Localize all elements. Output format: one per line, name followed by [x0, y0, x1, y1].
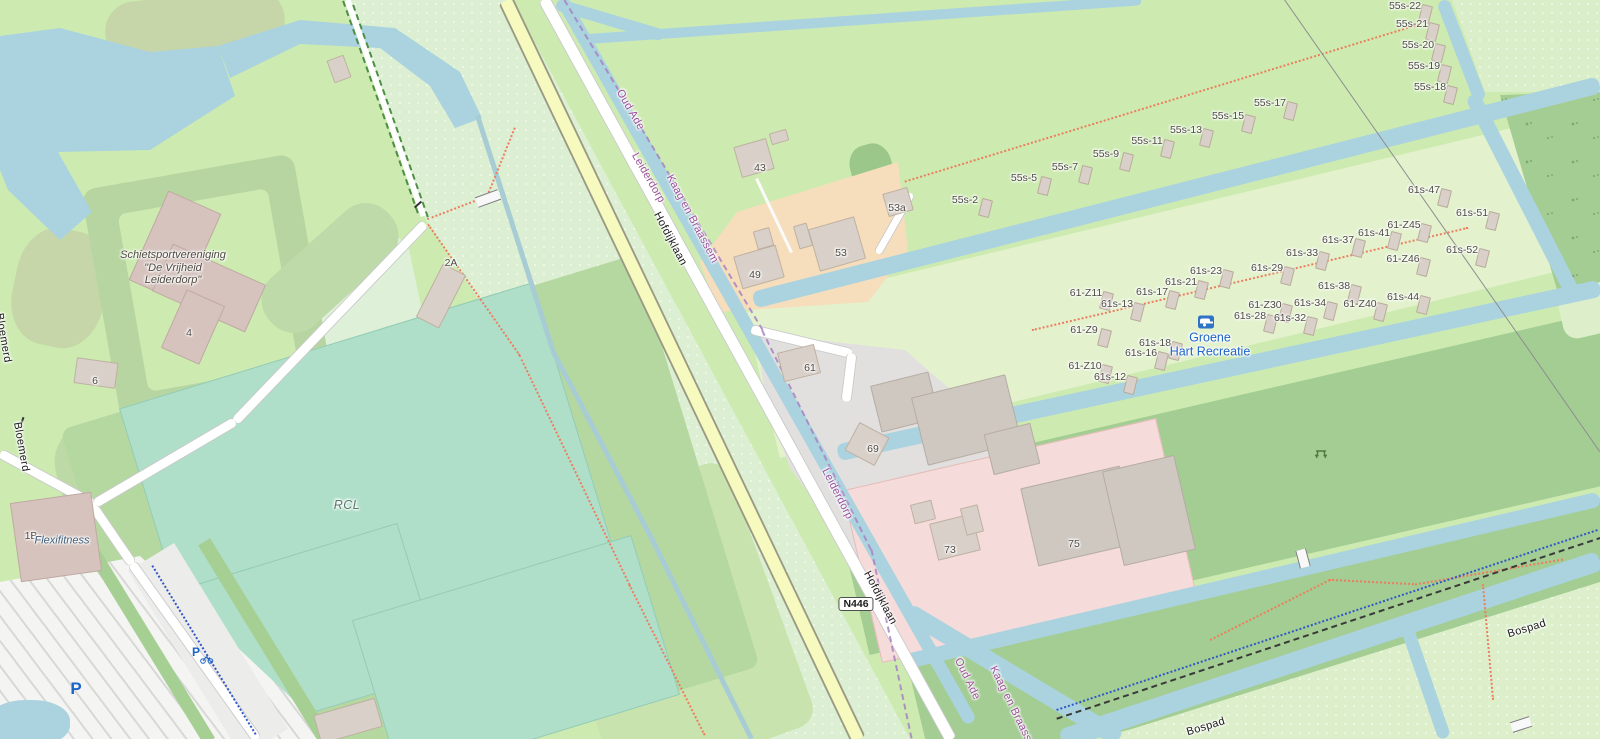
cabin-label: 61-Z9 — [1070, 324, 1097, 336]
parking-icon: P — [70, 679, 81, 699]
cabin-label: 61s-18 — [1139, 337, 1171, 349]
place-label: Flexifitness — [34, 535, 89, 548]
cabin-label: 61-Z40 — [1343, 298, 1376, 310]
cabin-label: 61s-21 — [1165, 276, 1197, 288]
house-number: 53 — [835, 247, 847, 259]
cabin-label: 55s-15 — [1212, 110, 1244, 122]
cabin-label: 61s-33 — [1286, 247, 1318, 259]
building — [326, 55, 351, 84]
cabin-label: 55s-22 — [1389, 0, 1421, 12]
cabin-label: 61s-52 — [1446, 244, 1478, 256]
map-canvas[interactable]: P P 55s-255s-555s-755s-955s-1155s-1355s-… — [0, 0, 1600, 739]
cabin-label: 61s-13 — [1101, 298, 1133, 310]
house-number: 4 — [186, 327, 192, 339]
cabin-label: 61s-28 — [1234, 310, 1266, 322]
cabin-label: 61s-38 — [1318, 280, 1350, 292]
cabin-label: 55s-7 — [1052, 161, 1078, 173]
cabin-label: 61s-12 — [1094, 371, 1126, 383]
house-number: 6 — [92, 375, 98, 387]
road-shield-n446: N446 — [838, 597, 873, 611]
cabin-label: 55s-2 — [952, 194, 978, 206]
cabin-label: 61-Z46 — [1386, 253, 1419, 265]
cabin-label: 61s-44 — [1387, 291, 1419, 303]
house-number: 75 — [1068, 538, 1080, 550]
house-number: 73 — [944, 544, 956, 556]
cabin-label: 55s-13 — [1170, 124, 1202, 136]
cabin-label: 61s-29 — [1251, 262, 1283, 274]
house-number: 2A — [445, 257, 458, 269]
cabin-label: 55s-21 — [1396, 18, 1428, 30]
cabin-label: 61s-47 — [1408, 184, 1440, 196]
cabin-label: 61-Z45 — [1387, 219, 1420, 231]
place-label: Groene Hart Recreatie — [1170, 331, 1251, 360]
cabin-label: 61s-32 — [1274, 312, 1306, 324]
cabin-label: 61s-17 — [1136, 286, 1168, 298]
house-number: 43 — [754, 162, 766, 174]
cabin — [1119, 152, 1134, 172]
cabin-label: 61s-23 — [1190, 265, 1222, 277]
cabin-label: 61s-34 — [1294, 297, 1326, 309]
cabin-label: 61s-37 — [1322, 234, 1354, 246]
caravan-site-icon — [1198, 316, 1214, 329]
house-number: 53a — [888, 202, 906, 214]
building — [769, 129, 790, 145]
cabin — [978, 198, 993, 218]
pond-bottom-left — [0, 700, 70, 739]
cabin-label: 55s-9 — [1093, 148, 1119, 160]
cabin-label: 55s-11 — [1131, 135, 1162, 147]
house-number: 69 — [867, 443, 879, 455]
place-label: RCL — [334, 498, 361, 512]
cabin-label: 61s-41 — [1358, 227, 1390, 239]
cabin-label: 55s-20 — [1402, 39, 1434, 51]
cabin-label: 55s-5 — [1011, 172, 1037, 184]
canal-top-field — [577, 0, 1141, 45]
house-number: 49 — [749, 269, 761, 281]
house-number: 61 — [804, 362, 816, 374]
cabin-label: 55s-18 — [1414, 81, 1446, 93]
street-label: Bloemerd — [0, 312, 14, 364]
bicycle-icon — [200, 655, 214, 664]
cabin — [1037, 176, 1052, 196]
picnic-site-icon — [1314, 448, 1328, 459]
cabin-label: 61-Z30 — [1248, 299, 1281, 311]
cabin-label: 61-Z11 — [1070, 287, 1103, 299]
cabin-label: 55s-19 — [1408, 60, 1440, 72]
bicycle-parking-icon: P — [192, 645, 200, 659]
cabin — [1078, 165, 1093, 185]
cabin-label: 61s-51 — [1456, 207, 1488, 219]
place-label: Schietsportvereniging "De Vrijheid Leide… — [120, 249, 226, 287]
cabin-label: 55s-17 — [1254, 97, 1286, 109]
